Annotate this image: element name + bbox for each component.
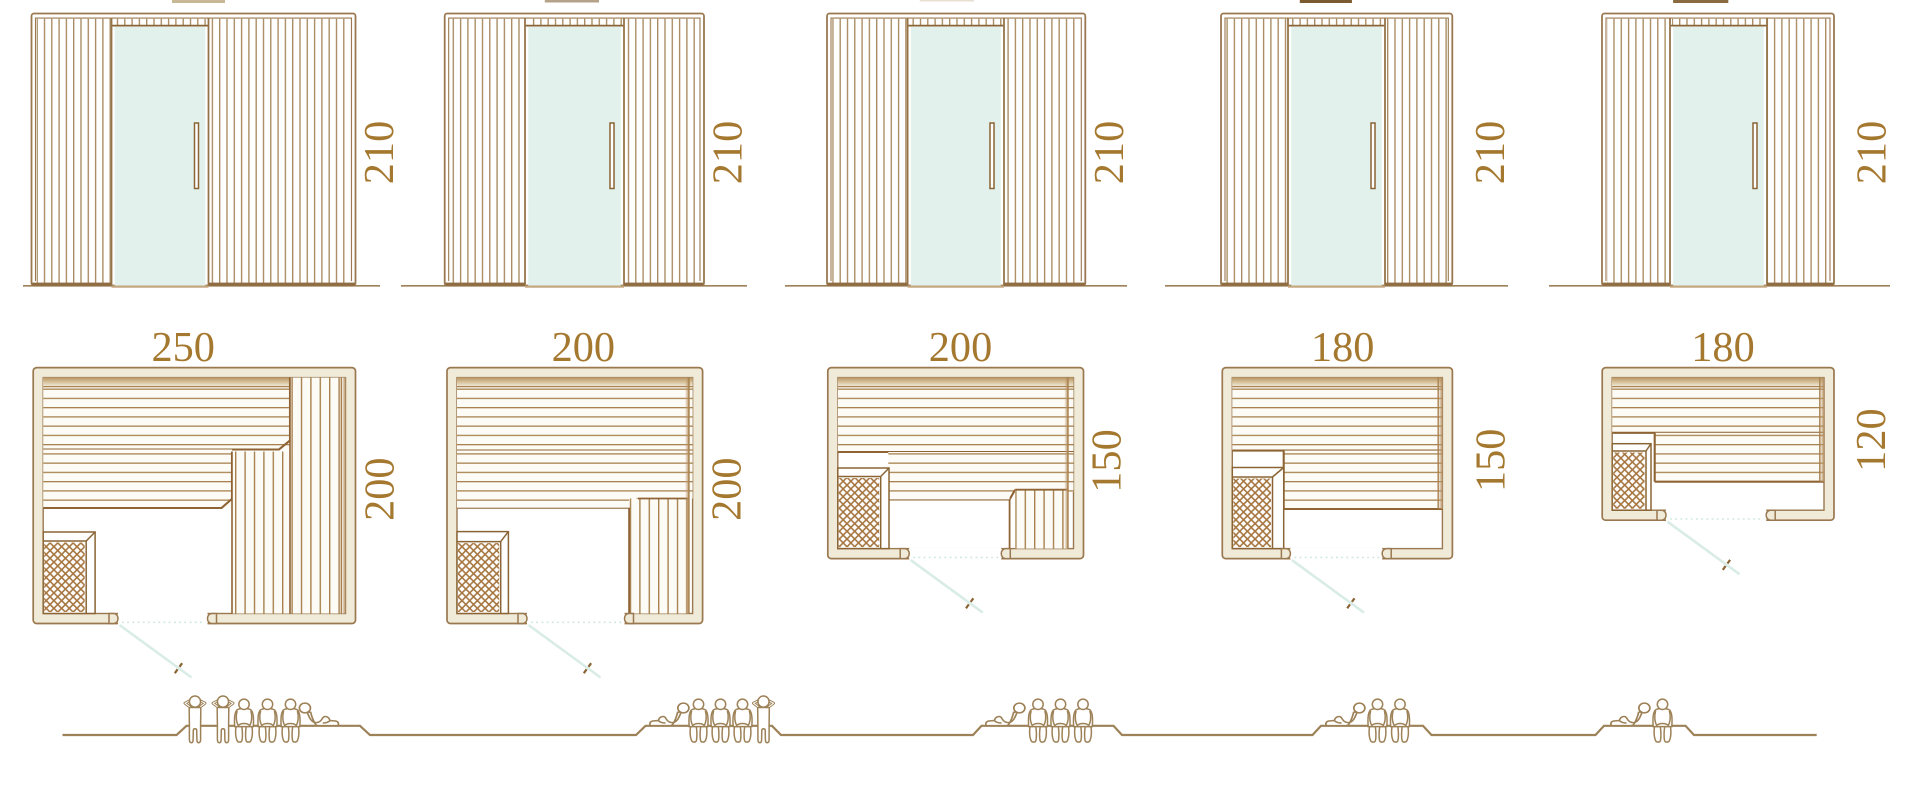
svg-text:210: 210 [1849, 121, 1896, 184]
svg-text:200: 200 [552, 324, 615, 371]
svg-text:200: 200 [703, 457, 750, 520]
svg-text:150: 150 [1084, 429, 1131, 492]
svg-text:200: 200 [356, 457, 403, 520]
svg-text:120: 120 [1848, 408, 1895, 471]
svg-text:210: 210 [356, 121, 403, 184]
svg-text:150: 150 [1468, 429, 1515, 492]
svg-text:210: 210 [1467, 121, 1514, 184]
svg-text:180: 180 [1691, 324, 1754, 371]
svg-text:210: 210 [1086, 121, 1133, 184]
svg-text:200: 200 [929, 324, 992, 371]
svg-text:250: 250 [151, 324, 214, 371]
svg-text:210: 210 [705, 121, 752, 184]
svg-text:180: 180 [1311, 324, 1374, 371]
